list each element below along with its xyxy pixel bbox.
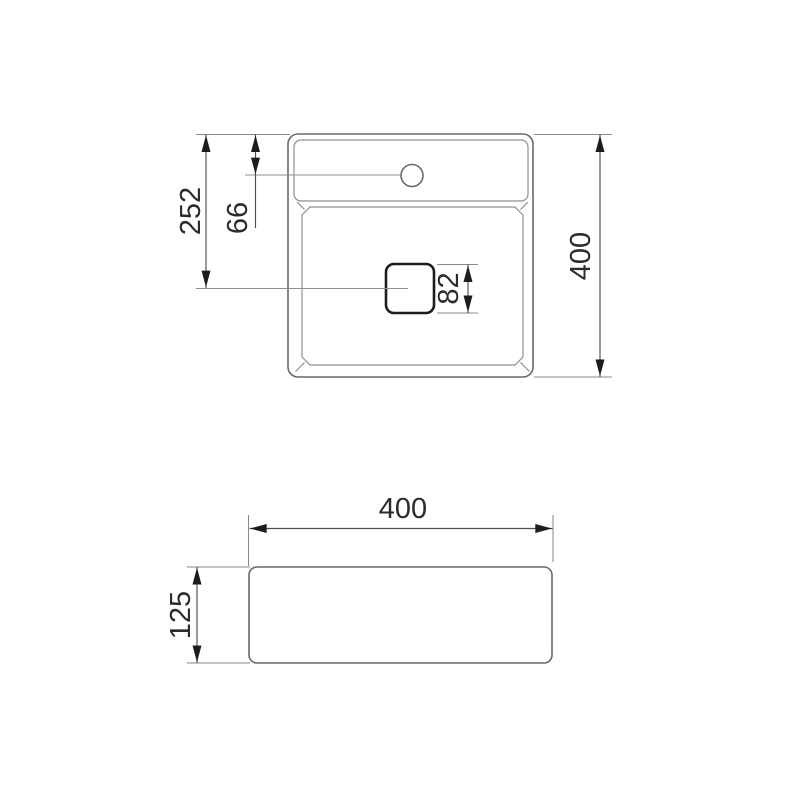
- faucet-hole: [401, 165, 423, 187]
- dimension-drain-offset: 252: [175, 135, 211, 289]
- arrowhead-down: [251, 158, 260, 175]
- basin-front-outline: [249, 567, 552, 663]
- arrowhead-left: [250, 524, 267, 533]
- dimension-label: 252: [175, 187, 207, 235]
- bowl-corner-slope-tl: [297, 202, 305, 210]
- dimension-drain-size: 82: [433, 265, 478, 314]
- dimension-label: 400: [565, 232, 597, 280]
- technical-drawing: 252 66 82 400: [0, 0, 800, 800]
- arrowhead-down: [596, 360, 605, 377]
- dimension-overall-depth: 400: [534, 135, 612, 378]
- bowl-corner-slope-tr: [521, 202, 529, 210]
- arrowhead-right: [535, 524, 552, 533]
- page: 252 66 82 400: [0, 0, 800, 800]
- dimension-body-height: 125: [165, 567, 250, 663]
- faucet-deck: [294, 140, 528, 201]
- bowl-corner-slope-bl: [296, 363, 305, 372]
- dimension-overall-width: 400: [249, 493, 554, 566]
- top-view: 252 66 82 400: [175, 134, 612, 377]
- arrowhead-up: [251, 135, 260, 152]
- basin-outer-rim: [288, 134, 533, 377]
- dimension-faucet-offset: 66: [222, 135, 260, 235]
- arrowhead-up: [202, 135, 211, 152]
- bowl-opening: [302, 207, 523, 365]
- front-view: 400 125: [165, 493, 553, 663]
- arrowhead-up: [193, 568, 202, 585]
- dimension-label: 82: [433, 272, 465, 304]
- arrowhead-up: [596, 135, 605, 152]
- arrowhead-down: [193, 646, 202, 663]
- bowl-corner-slope-br: [521, 363, 530, 372]
- dimension-label: 400: [379, 493, 427, 525]
- dimension-label: 125: [165, 591, 197, 639]
- arrowhead-down: [202, 271, 211, 288]
- dimension-label: 66: [222, 202, 254, 234]
